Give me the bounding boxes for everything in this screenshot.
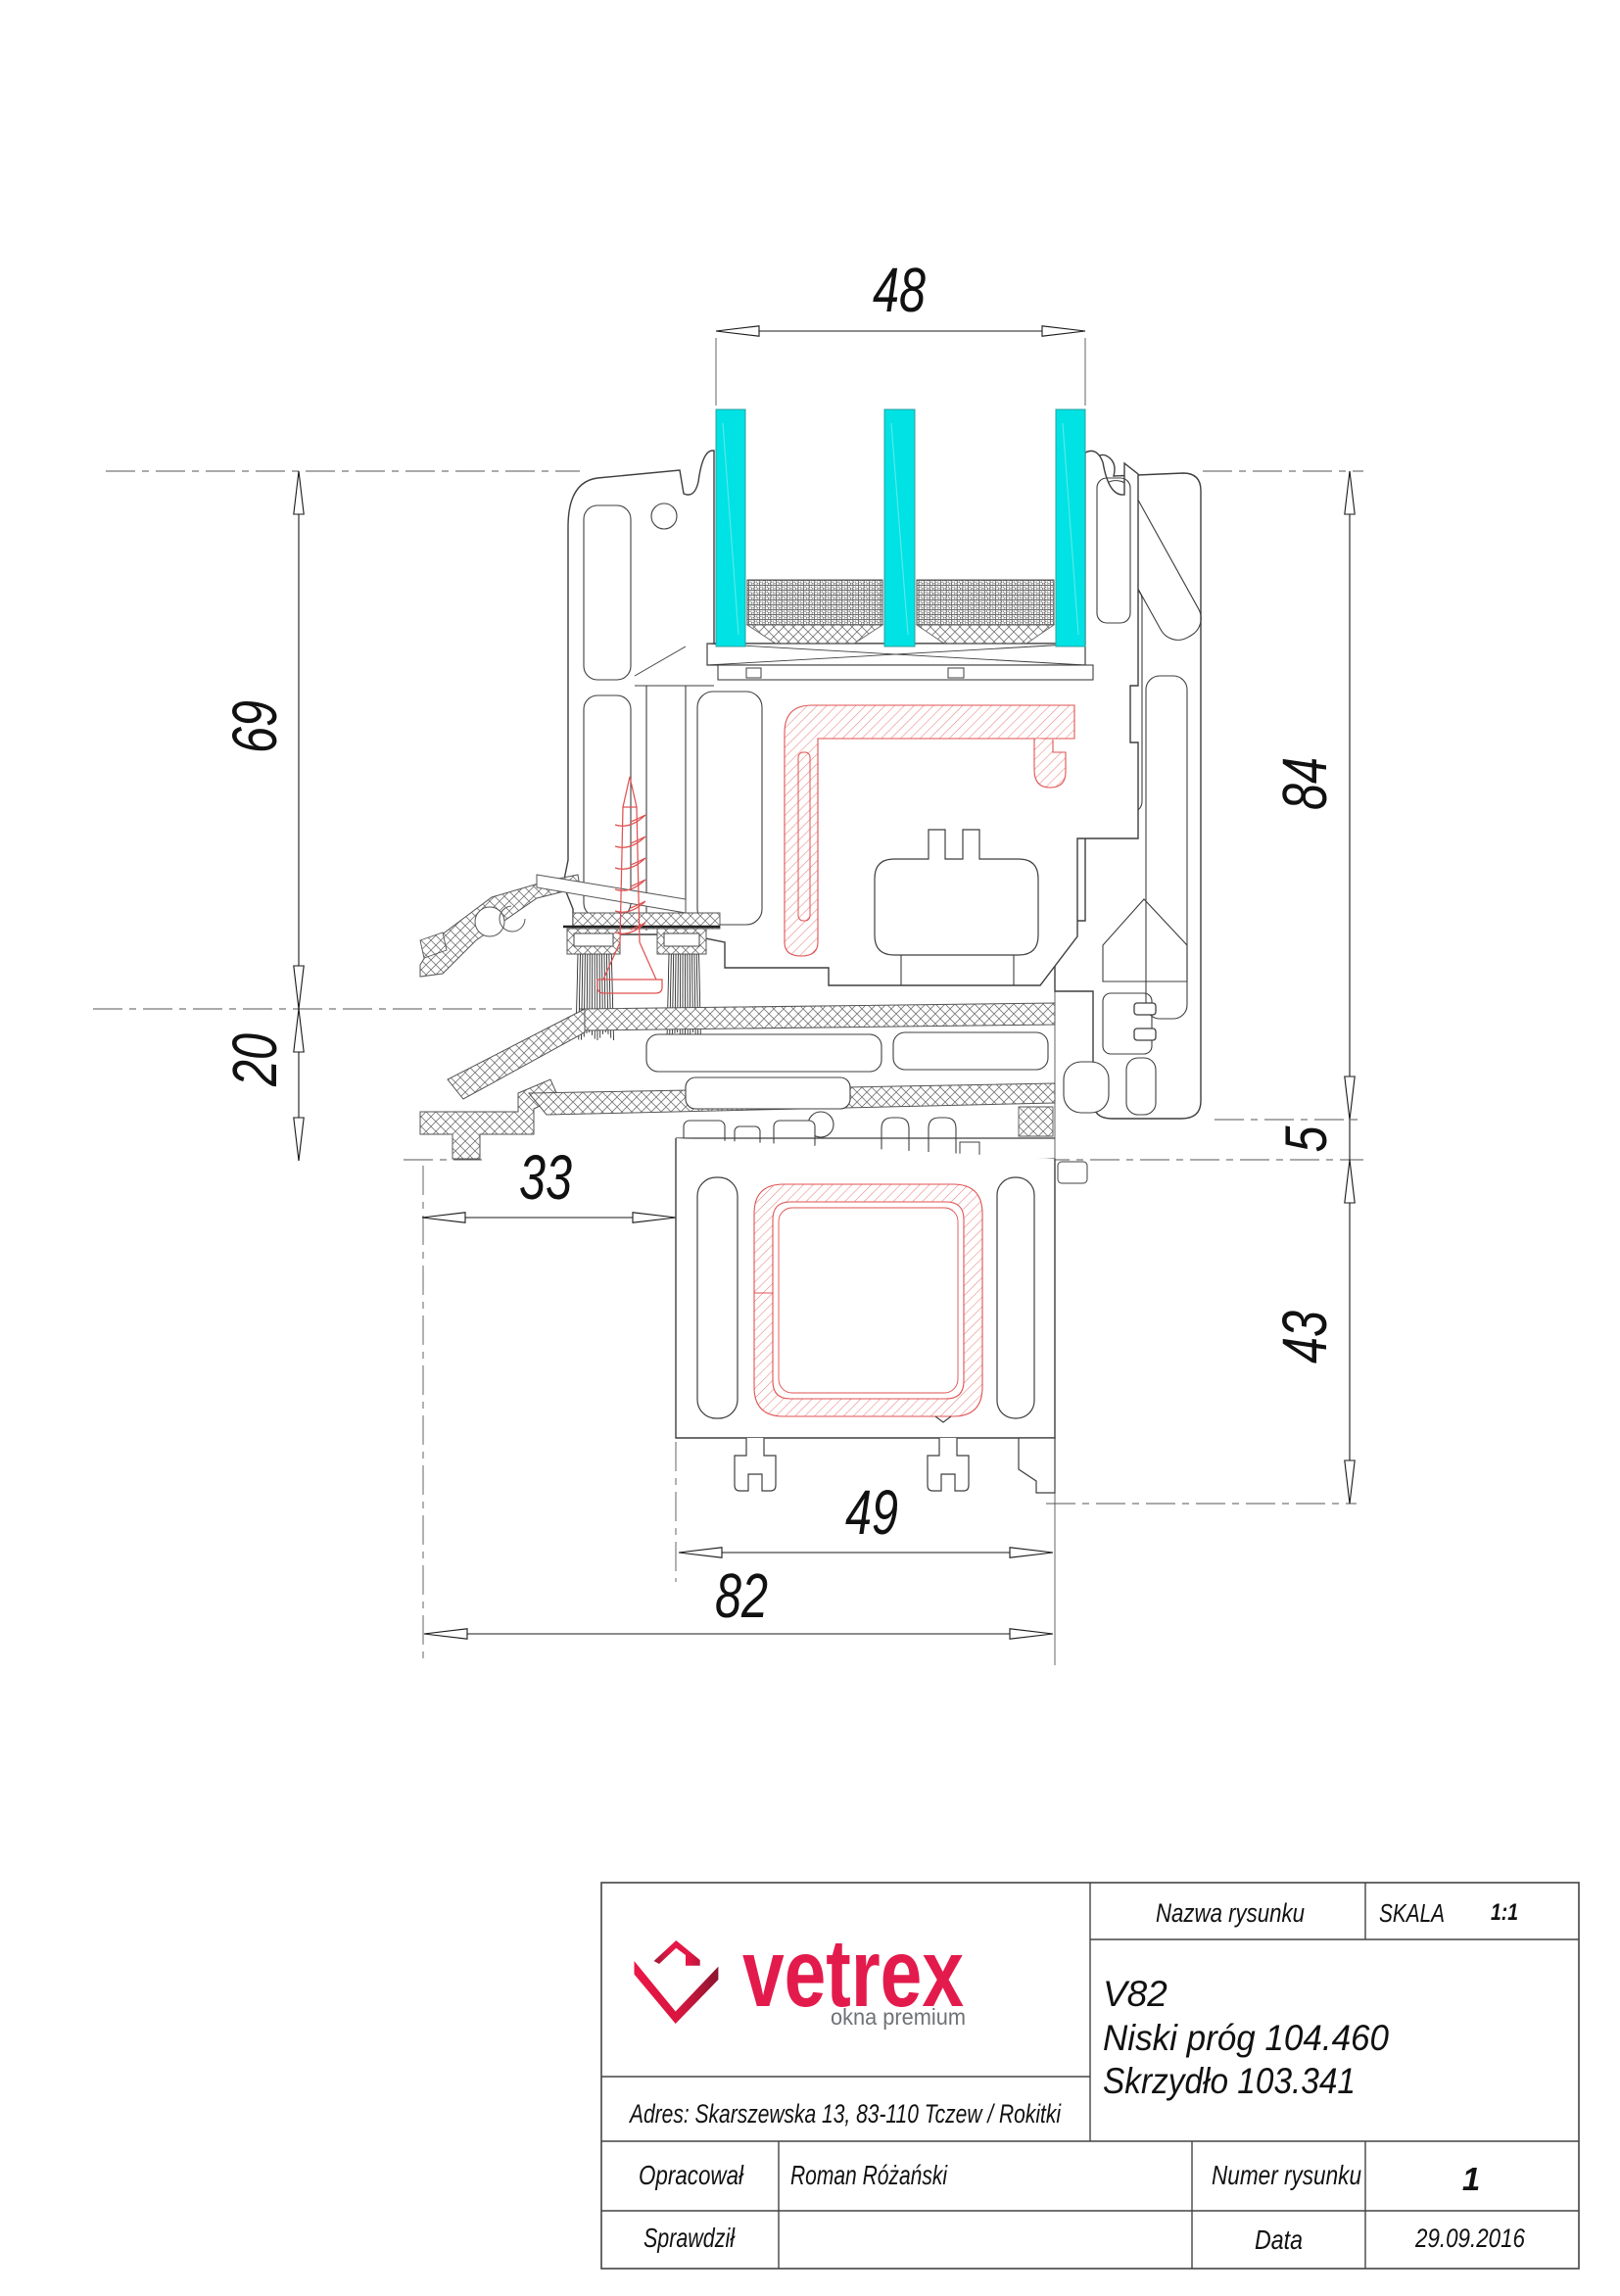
svg-text:Roman Różański: Roman Różański xyxy=(790,2160,948,2190)
svg-text:Adres: Skarszewska 13, 83-110: Adres: Skarszewska 13, 83-110 Tczew / Ro… xyxy=(628,2099,1061,2129)
svg-text:33: 33 xyxy=(519,1142,572,1213)
svg-text:okna premium: okna premium xyxy=(831,2004,966,2030)
svg-text:SKALA: SKALA xyxy=(1379,1898,1445,1928)
svg-text:69: 69 xyxy=(219,700,290,753)
svg-text:Data: Data xyxy=(1255,2224,1303,2255)
svg-text:V82: V82 xyxy=(1103,1974,1167,2014)
svg-text:20: 20 xyxy=(219,1033,290,1087)
svg-text:1: 1 xyxy=(1462,2161,1480,2197)
svg-text:43: 43 xyxy=(1269,1311,1340,1363)
svg-text:Numer rysunku: Numer rysunku xyxy=(1212,2160,1361,2190)
svg-text:1:1: 1:1 xyxy=(1491,1899,1518,1926)
svg-text:Sprawdził: Sprawdził xyxy=(643,2223,736,2253)
svg-text:82: 82 xyxy=(715,1560,768,1631)
svg-text:5: 5 xyxy=(1273,1125,1339,1153)
svg-text:Niski próg 104.460: Niski próg 104.460 xyxy=(1103,2018,1389,2058)
svg-text:84: 84 xyxy=(1269,757,1340,810)
svg-text:49: 49 xyxy=(845,1477,898,1548)
svg-text:Opracował: Opracował xyxy=(639,2160,744,2190)
svg-text:Nazwa rysunku: Nazwa rysunku xyxy=(1156,1898,1305,1928)
svg-text:Skrzydło 103.341: Skrzydło 103.341 xyxy=(1103,2061,1356,2101)
svg-text:48: 48 xyxy=(873,255,926,325)
svg-text:29.09.2016: 29.09.2016 xyxy=(1414,2224,1526,2253)
